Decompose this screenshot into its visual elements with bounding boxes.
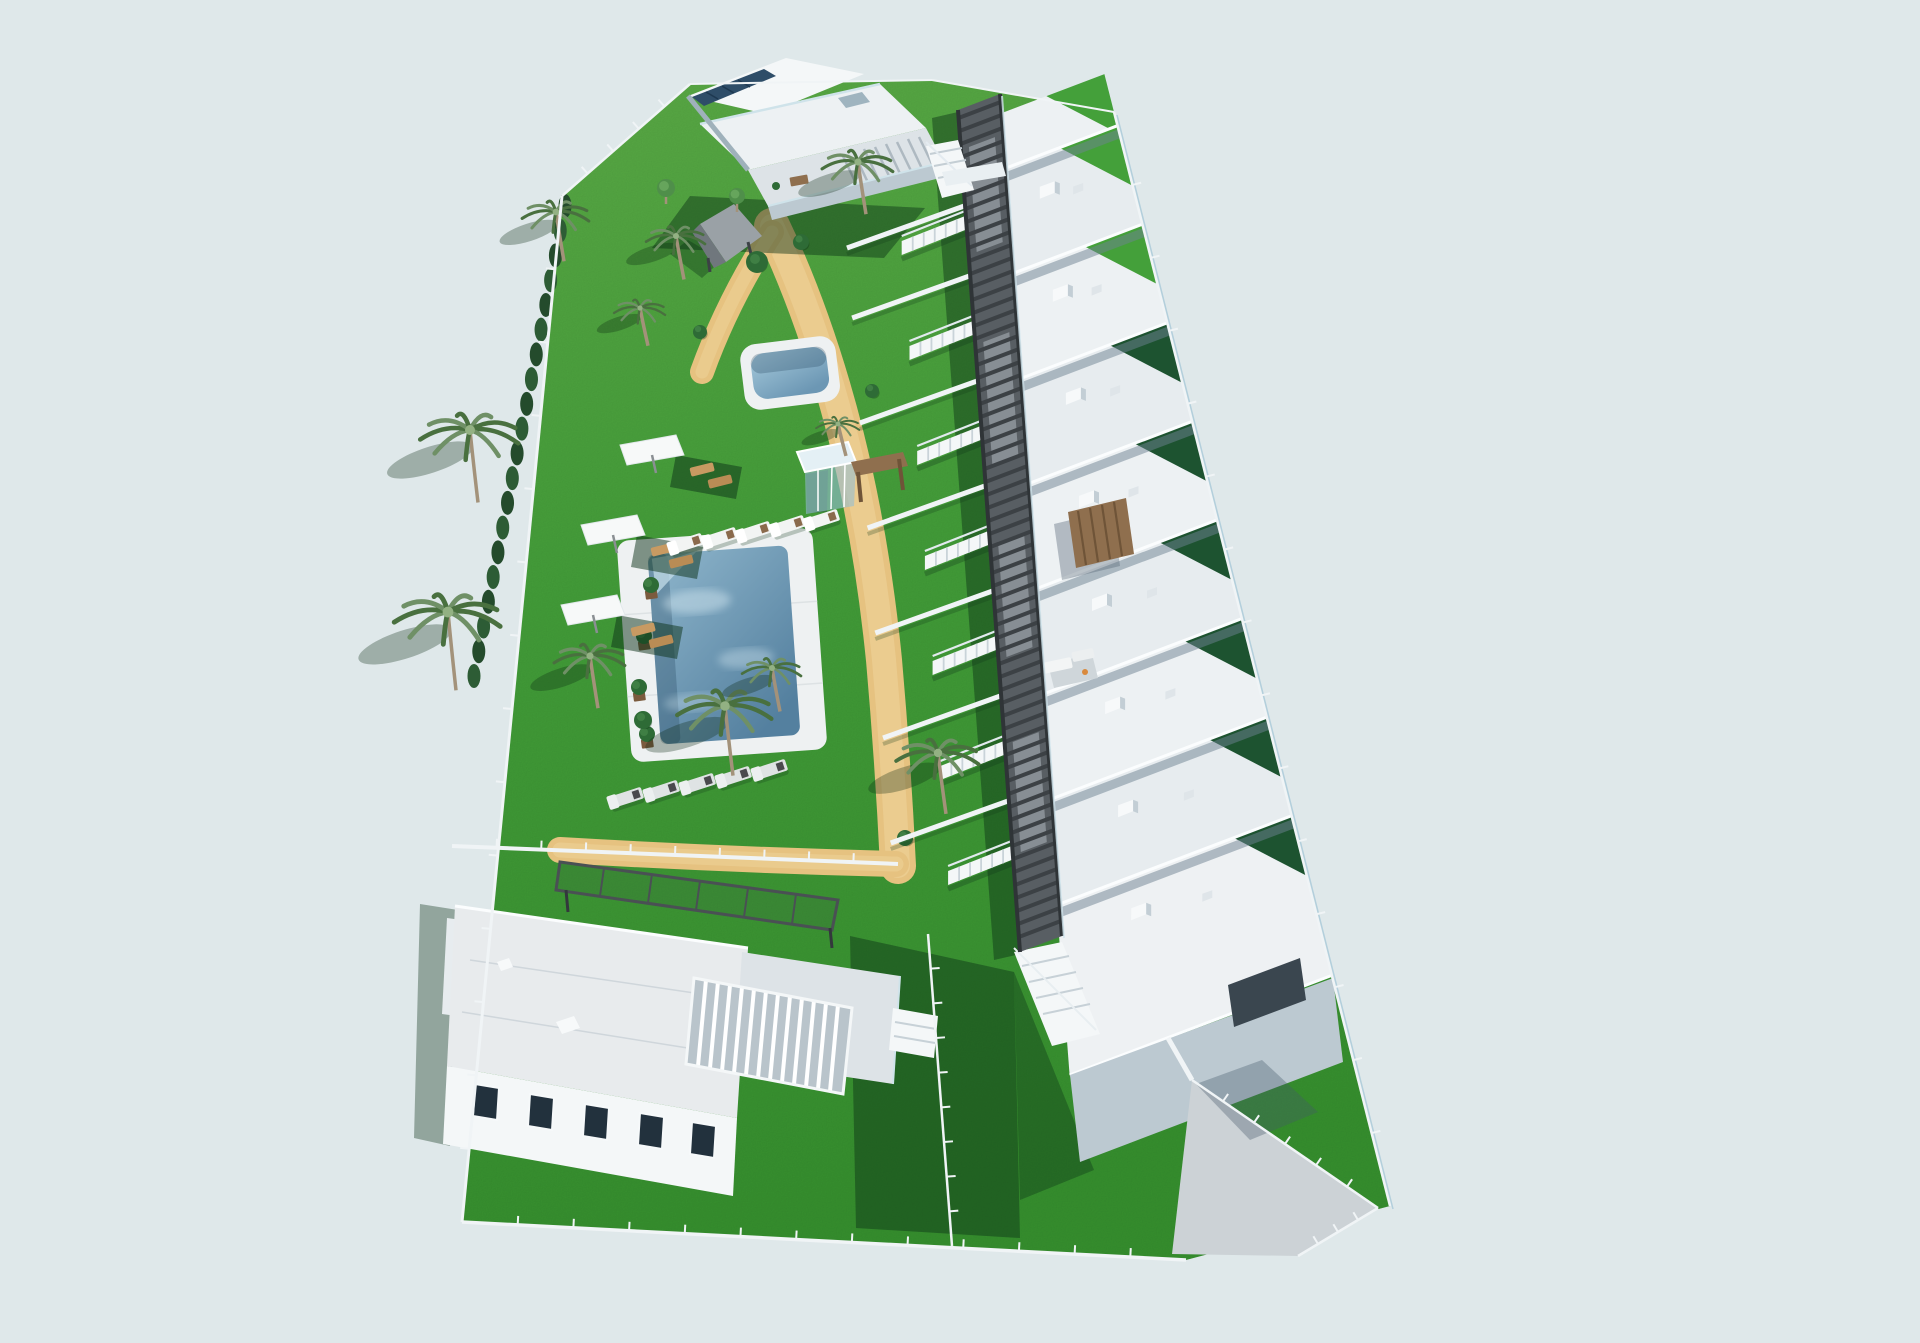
palm-crown [720,701,730,711]
chimney-side [1081,387,1086,401]
chimney-side [1107,594,1112,608]
fence-post [939,1072,948,1073]
window [473,1084,499,1120]
palm-crown [934,749,942,757]
palm-crown [637,305,642,310]
fence-post [467,1075,476,1076]
fence-post [482,928,491,929]
bush-highlight [695,326,701,332]
bush-highlight [750,254,760,264]
cypress-tree [501,491,514,515]
window [690,1122,716,1158]
fence-post [947,1176,956,1177]
fence-post [517,562,526,563]
kids-pool [738,334,841,411]
cypress-tree [530,342,543,366]
palm-crown [673,233,679,239]
fence-post [539,342,548,343]
chimney-side [1133,800,1138,814]
fence-post [510,635,519,636]
chimney-side [1094,490,1099,504]
fence-post [474,1001,483,1002]
planter-highlight [632,681,640,689]
villa-access-stair [889,1008,938,1058]
chimney-side [1055,181,1060,195]
pergola-post [566,890,568,912]
planter-highlight [640,728,648,736]
palm-crown [836,422,841,427]
aerial-render: Residential complex - aerial 3D render A… [0,0,1920,1343]
fence-post [503,708,512,709]
palm-crown [769,665,775,671]
cypress-tree [525,367,538,391]
fence-post [524,488,533,489]
fence-post [944,1141,953,1142]
chimney-side [1120,697,1125,711]
palm-crown [465,425,475,435]
cypress-tree [496,516,509,540]
window [583,1104,609,1140]
palm-crown [586,652,593,659]
fence-post [460,1148,469,1149]
fence-post [931,968,940,969]
glass-pool-house [797,442,856,514]
glass-house-frame [831,466,832,509]
fence-post [933,1003,942,1004]
fence-post [949,1211,958,1212]
pergola-post [830,928,832,948]
palm-crown [854,158,861,165]
cypress-tree [468,664,481,688]
palm-crown [443,607,454,618]
glass-house-frame [844,464,845,507]
cypress-tree [491,540,504,564]
fence-post [936,1037,945,1038]
roof-accent [1082,669,1088,675]
fence-post [496,781,505,782]
chimney-side [1068,284,1073,298]
planter-highlight [644,579,652,587]
cypress-tree [535,318,548,342]
cypress-tree [487,565,500,589]
gazebo-leg [708,258,710,272]
cypress-tree [472,639,485,663]
cypress-tree [506,466,519,490]
fence-post [489,855,498,856]
bush-highlight [637,713,645,721]
chimney-side [1146,903,1151,917]
window [638,1113,664,1149]
tree-highlight [659,181,669,191]
tree-highlight [731,190,740,199]
bush-highlight [795,235,802,242]
fence-post [546,268,555,269]
bush-highlight [867,385,873,391]
window [528,1094,554,1130]
terrace-plant [772,182,780,190]
palm-crown [553,209,560,216]
fence-post [532,415,541,416]
fence-post [941,1107,950,1108]
cypress-tree [520,392,533,416]
